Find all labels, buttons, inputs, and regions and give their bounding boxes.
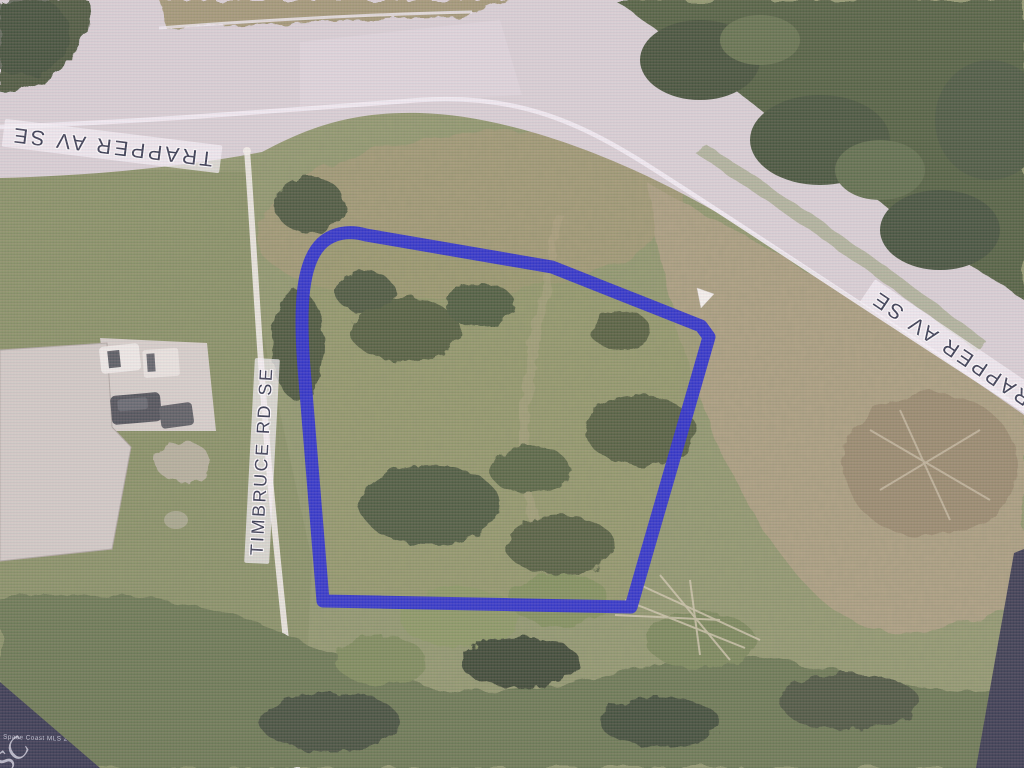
debris-patch-right xyxy=(842,393,1018,537)
vehicle-dark-car xyxy=(159,402,195,429)
aerial-scene xyxy=(0,0,1024,768)
mls-aerial-photo: TRAPPER AV SE TRAPPER AV SE TIMBRUCE RD … xyxy=(0,0,1024,768)
vehicle-white-truck xyxy=(142,348,180,378)
vehicle-dark-van xyxy=(110,392,162,425)
aerial-map: TRAPPER AV SE TRAPPER AV SE TIMBRUCE RD … xyxy=(0,0,1024,768)
sand-patch-small xyxy=(164,511,188,529)
sand-patch xyxy=(156,441,210,483)
vehicle-white-car xyxy=(99,343,142,374)
